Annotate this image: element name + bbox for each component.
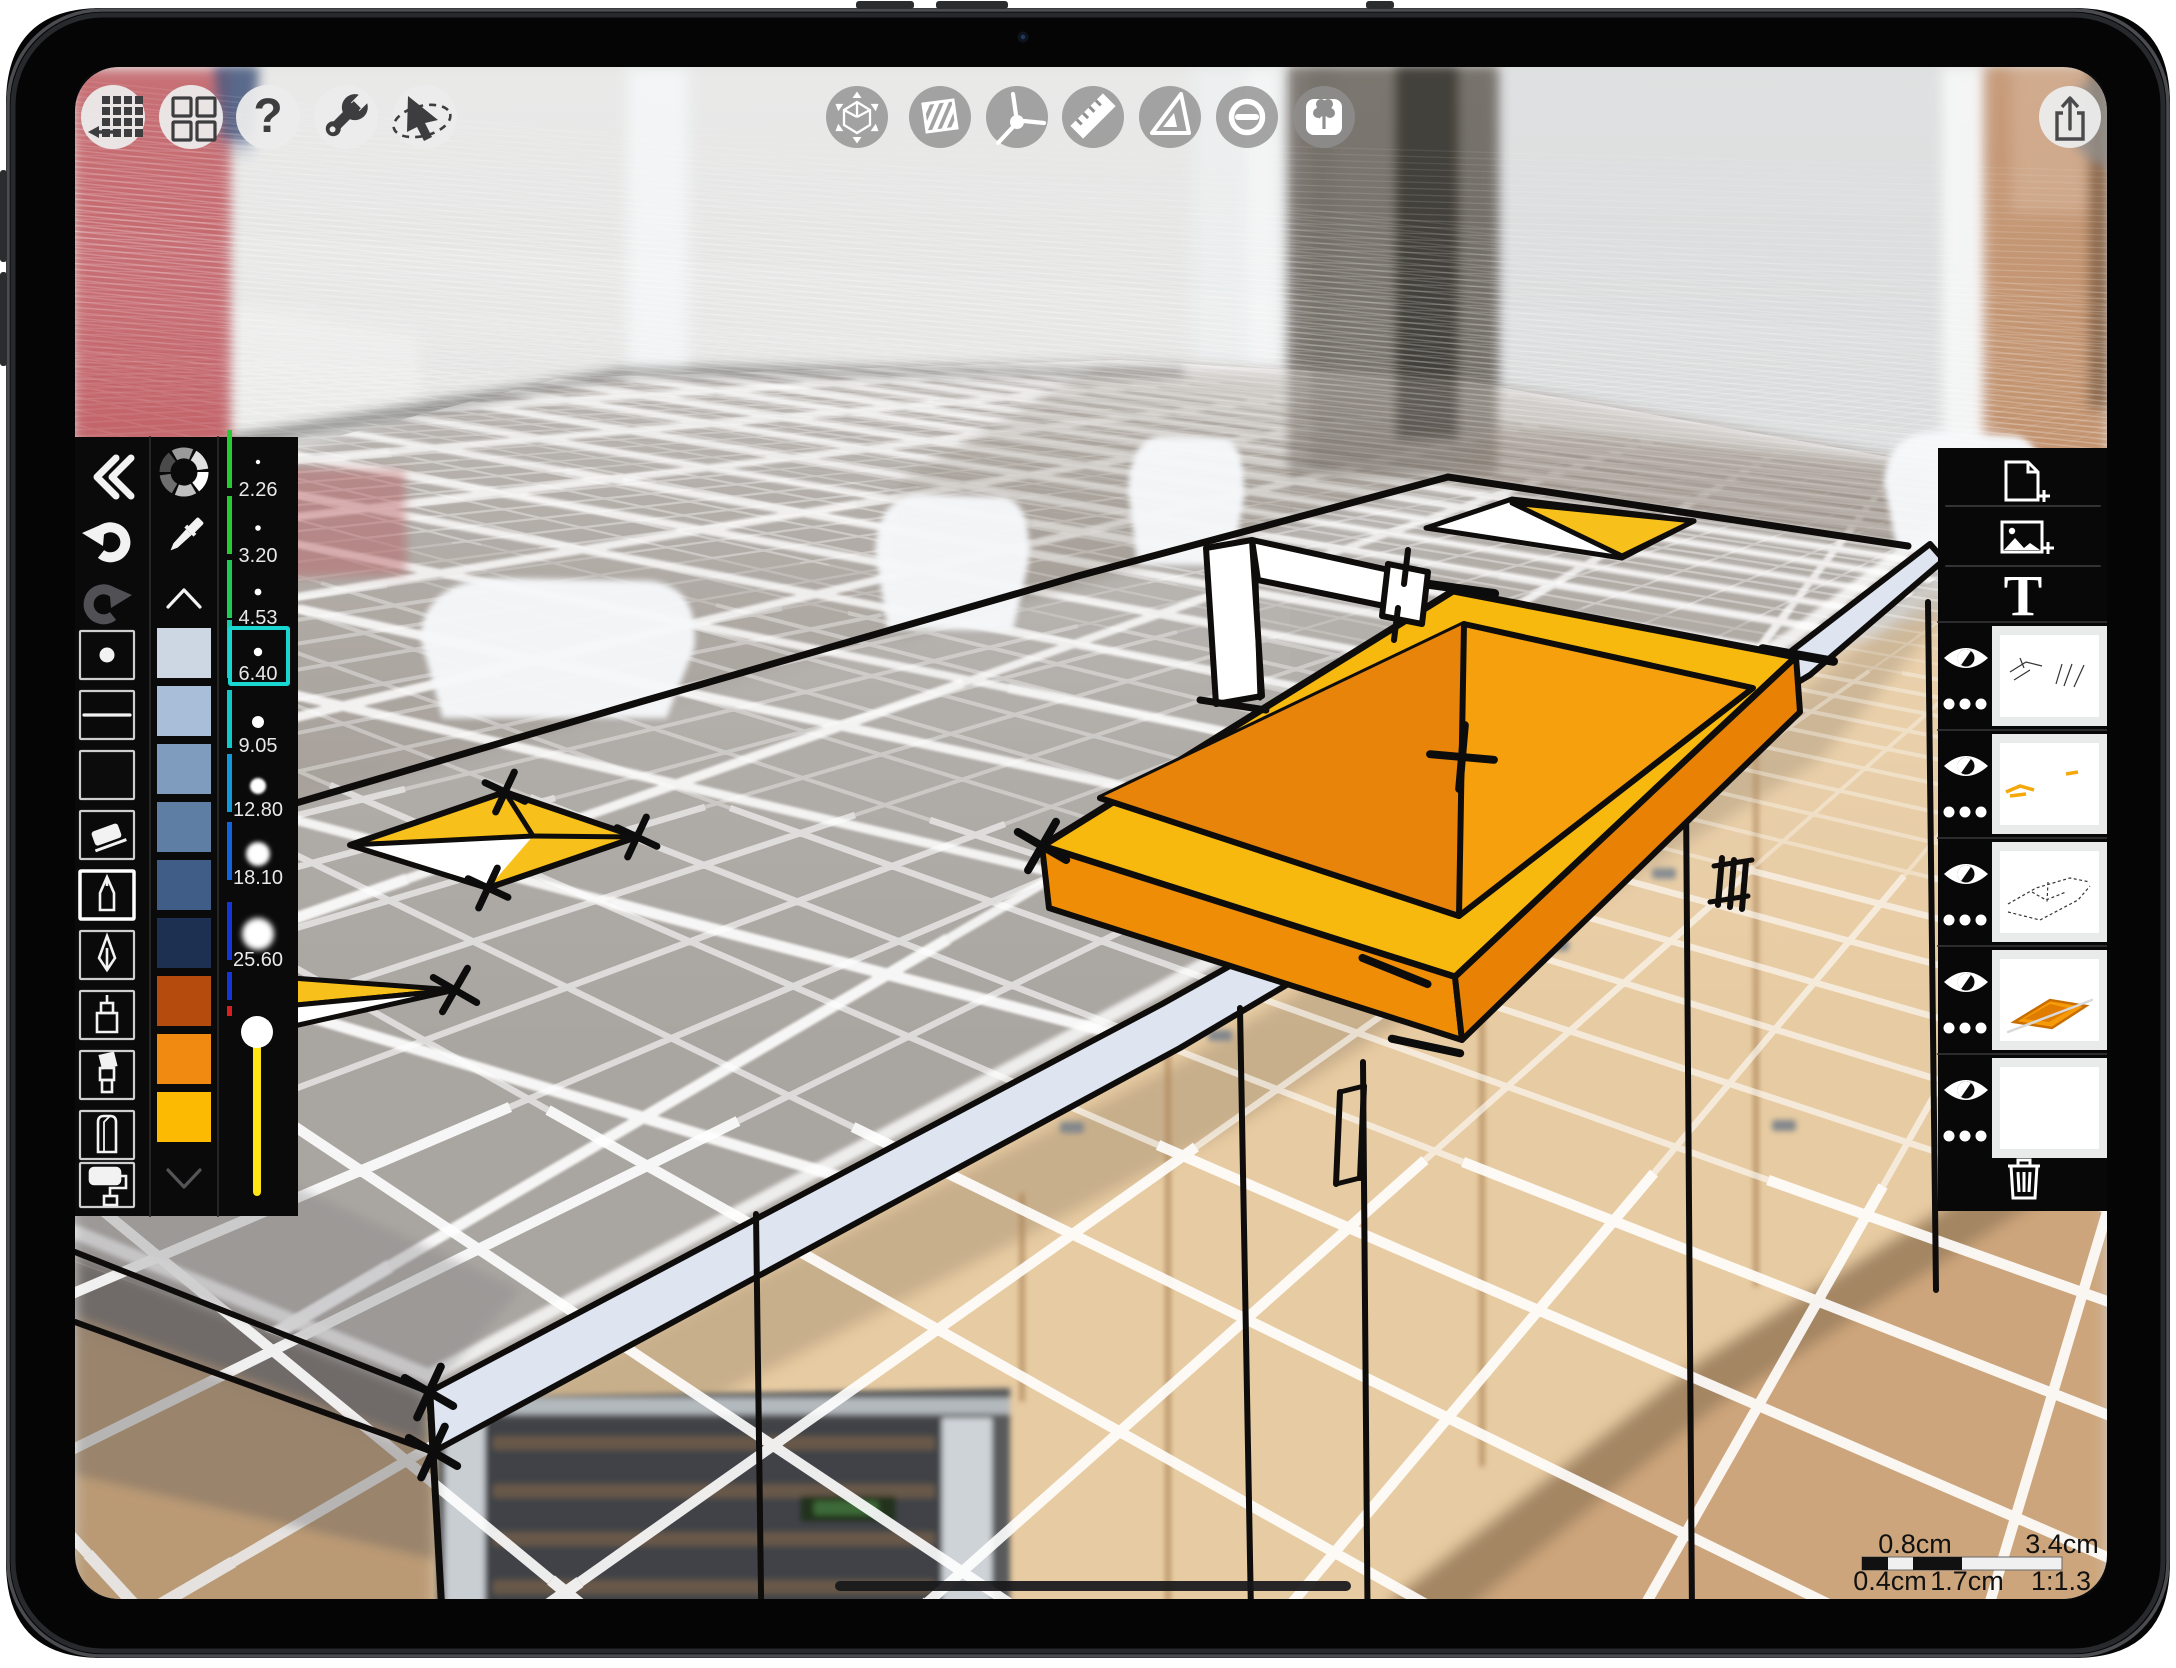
svg-text:1.7cm: 1.7cm (1930, 1566, 2004, 1596)
svg-text:6.40: 6.40 (239, 663, 278, 685)
svg-text:?: ? (253, 90, 282, 143)
svg-text:9.05: 9.05 (239, 735, 278, 757)
svg-text:T: T (2004, 563, 2043, 628)
svg-text:25.60: 25.60 (233, 949, 283, 971)
svg-text:12.80: 12.80 (233, 799, 283, 821)
svg-text:18.10: 18.10 (233, 867, 283, 889)
svg-text:0.8cm: 0.8cm (1878, 1529, 1952, 1559)
svg-text:4.53: 4.53 (239, 607, 278, 629)
svg-text:3.20: 3.20 (239, 545, 278, 567)
svg-text:3.4cm: 3.4cm (2025, 1529, 2099, 1559)
svg-text:0.4cm: 0.4cm (1853, 1566, 1927, 1596)
svg-text:2.26: 2.26 (239, 479, 278, 501)
svg-text:1:1.3: 1:1.3 (2031, 1566, 2091, 1596)
